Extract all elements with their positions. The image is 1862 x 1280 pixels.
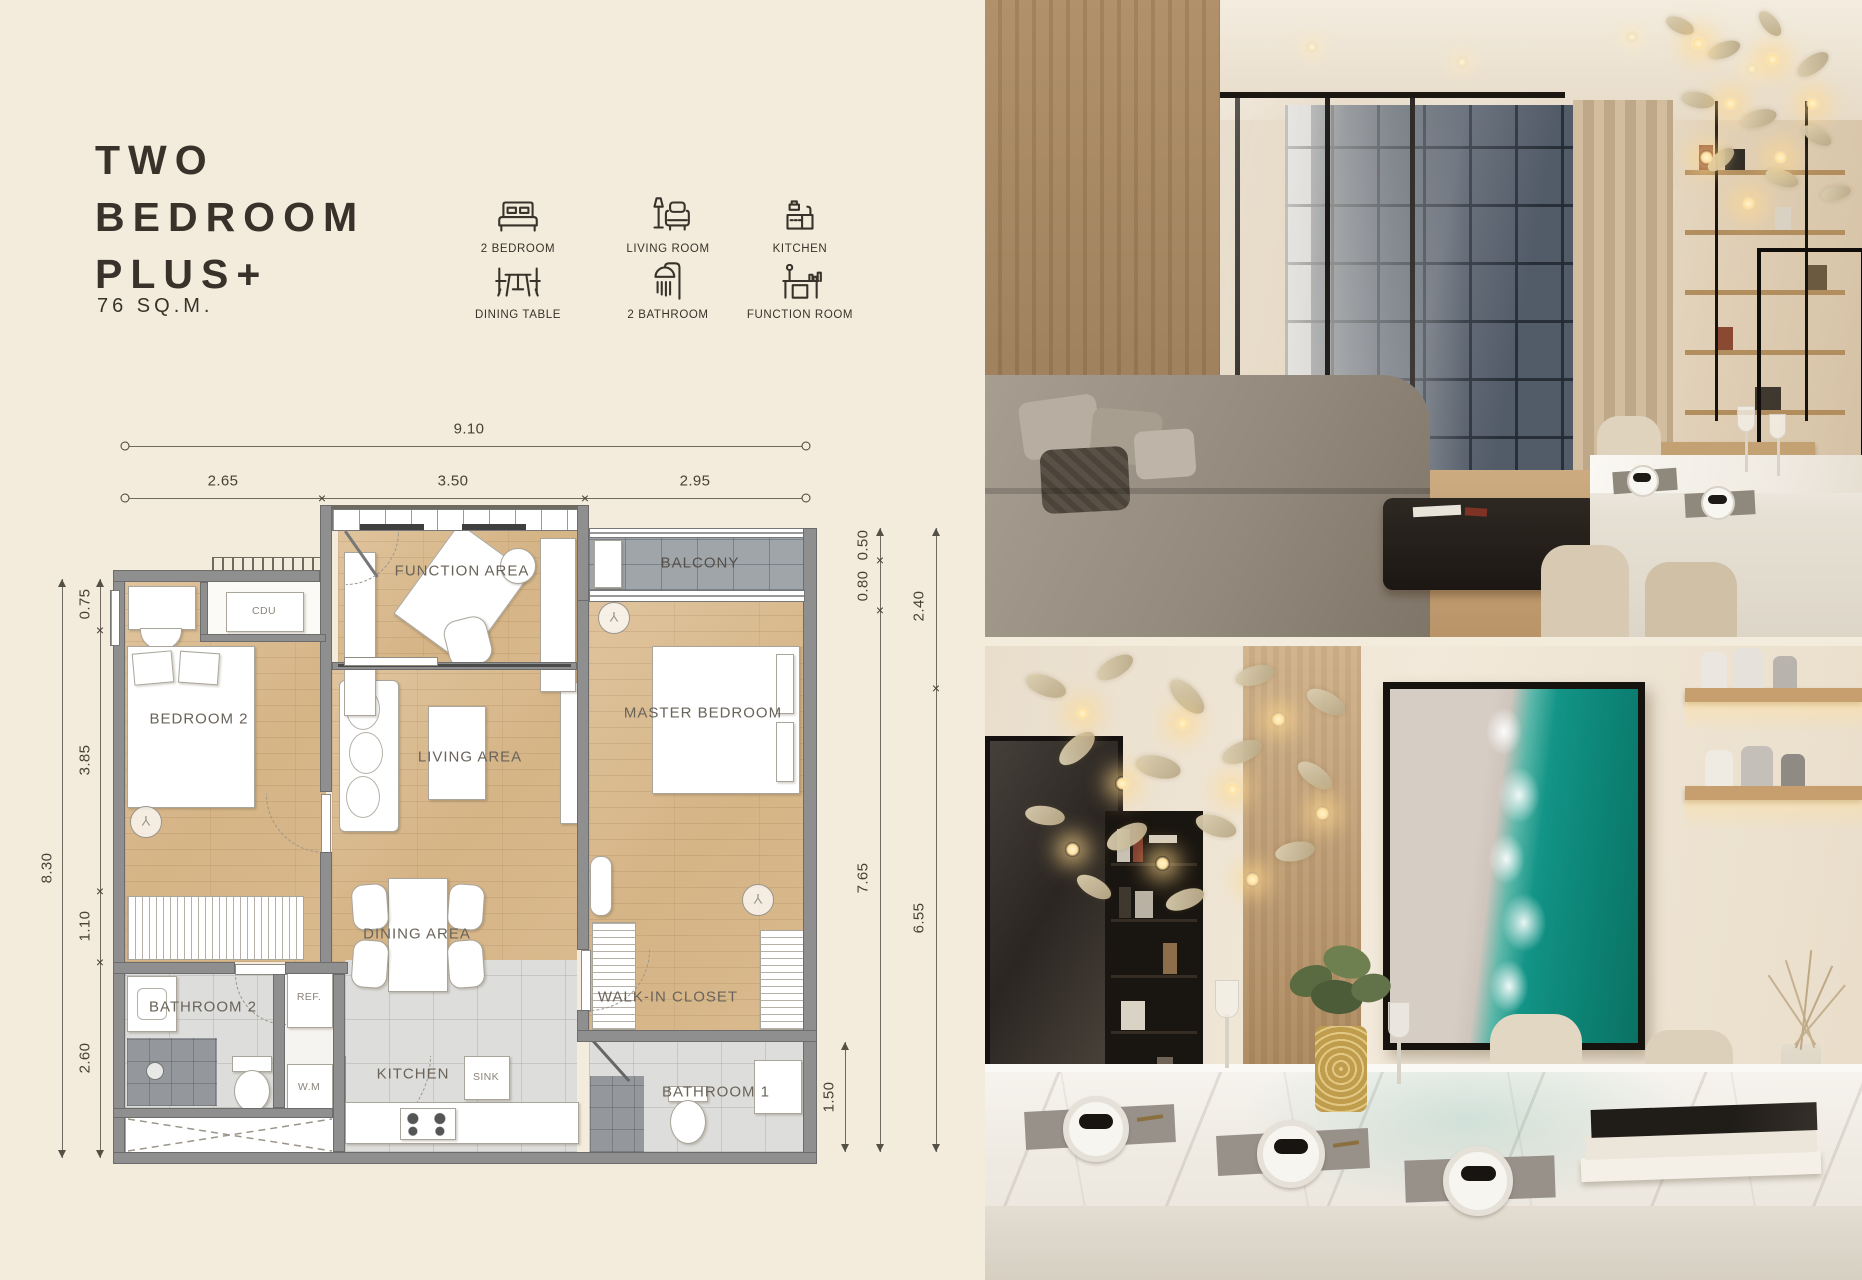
- napkin-roll: [1461, 1166, 1496, 1181]
- dining-chair: [446, 939, 485, 989]
- dim-r-outer-top: 2.40: [911, 591, 928, 622]
- dining-chair: [350, 939, 389, 989]
- toilet-bathroom1: [670, 1100, 706, 1144]
- pillow: [776, 722, 794, 782]
- counter-edge: [985, 1064, 1862, 1072]
- curtain-roll-master: [590, 856, 612, 916]
- legend-label: KITCHEN: [740, 243, 860, 256]
- sink-label: SINK: [473, 1071, 499, 1083]
- legend-item-dining: DINING TABLE: [458, 258, 578, 322]
- ocean-artwork: [1390, 689, 1638, 1043]
- wine-glass-stem: [1397, 1034, 1401, 1084]
- page-title-line2: BEDROOM: [95, 197, 365, 238]
- napkin-roll: [1079, 1114, 1113, 1129]
- kitchen-counter: [345, 1102, 579, 1144]
- wall: [113, 962, 235, 974]
- wall: [577, 600, 589, 950]
- balcony-rail: [589, 528, 805, 538]
- wine-glass: [1737, 406, 1755, 432]
- walk-in-closet-wardrobe-right: [760, 930, 804, 1030]
- sliding-door-leaf: [344, 657, 438, 666]
- canister: [1773, 656, 1797, 688]
- dim-bath1-width: 1.50: [821, 1082, 838, 1113]
- legend-label: 2 BEDROOM: [458, 243, 578, 256]
- wall: [113, 1152, 817, 1164]
- canister: [1741, 746, 1773, 786]
- closet-bedroom2: [127, 896, 304, 960]
- napkin-roll: [1708, 495, 1727, 504]
- brochure-page: TWO BEDROOM PLUS+ 76 SQ.M. 2 BEDROOM LIV…: [0, 0, 1862, 1280]
- dim-line-left-segments: [100, 579, 101, 1158]
- fridge-label: REF.: [297, 991, 321, 1003]
- shelf-underglow: [1685, 702, 1862, 732]
- dim-l3: 1.10: [77, 911, 94, 942]
- dim-w-right: 2.95: [680, 473, 711, 490]
- wine-glass-stem: [1777, 436, 1780, 476]
- canister: [1733, 648, 1763, 688]
- napkin-roll: [1274, 1139, 1308, 1154]
- balcony-sliding-glass: [589, 590, 805, 602]
- tv-console: [560, 682, 578, 824]
- room-label-living-area: LIVING AREA: [418, 749, 522, 766]
- ceiling-fan-symbol: [598, 602, 630, 634]
- pillow: [132, 650, 175, 685]
- dining-chair: [446, 883, 485, 931]
- legend-label: LIVING ROOM: [608, 243, 728, 256]
- canister: [1705, 750, 1733, 786]
- dining-chair-photo: [1645, 562, 1737, 637]
- room-label-bathroom1: BATHROOM 1: [662, 1084, 770, 1101]
- dim-line-bath1: [845, 1042, 846, 1152]
- wall: [577, 1030, 817, 1042]
- room-label-master-bedroom: MASTER BEDROOM: [624, 705, 782, 722]
- floating-shelf: [1685, 688, 1862, 702]
- bed-icon: [493, 192, 543, 238]
- dining-table-icon: [491, 258, 545, 304]
- dining-chair: [350, 883, 389, 931]
- sofa-cushion: [349, 732, 383, 774]
- dim-l4: 2.60: [77, 1043, 94, 1074]
- louver-vent: [212, 557, 320, 571]
- ocean-artwork-frame: [1383, 682, 1645, 1050]
- book-spine: [1163, 943, 1177, 974]
- window-lintel: [360, 524, 424, 530]
- x-brace: [126, 1117, 334, 1153]
- shelf-decor: [1121, 1001, 1145, 1030]
- wall: [320, 852, 332, 974]
- dim-l2: 3.85: [77, 745, 94, 776]
- ceiling-fan-symbol: [130, 806, 162, 838]
- sofa-cushion: [346, 776, 380, 818]
- dim-total-width: 9.10: [454, 421, 485, 438]
- shower-bathroom1: [590, 1076, 644, 1152]
- chandelier: [1645, 0, 1862, 235]
- wall: [113, 570, 125, 1164]
- wall: [285, 962, 348, 974]
- wall: [113, 1108, 333, 1118]
- room-label-bathroom2: BATHROOM 2: [149, 999, 257, 1016]
- cdu-label: CDU: [252, 605, 276, 617]
- toilet-bathroom2: [234, 1070, 270, 1112]
- ac-ledge: [125, 1116, 335, 1154]
- shower-icon: [643, 258, 693, 304]
- legend-item-bathroom: 2 BATHROOM: [608, 258, 728, 322]
- photo-dining-area: [985, 646, 1862, 1280]
- dining-chair-photo: [1541, 545, 1629, 637]
- page-title-line1: TWO: [95, 140, 215, 181]
- wall: [200, 634, 326, 642]
- legend-label: FUNCTION ROOM: [740, 309, 860, 322]
- unit-area: 76 SQ.M.: [97, 295, 213, 318]
- dim-line-right-outer: [936, 528, 937, 1152]
- chandelier: [985, 646, 1415, 946]
- canister: [1781, 754, 1805, 786]
- washer-label: W.M: [298, 1081, 320, 1093]
- dim-r1: 0.50: [855, 530, 872, 561]
- ceiling-fan-symbol: [742, 884, 774, 916]
- legend-item-bedroom: 2 BEDROOM: [458, 192, 578, 256]
- floating-shelf: [1685, 786, 1862, 800]
- dim-line-width-segments: [125, 498, 806, 499]
- photo-living-room: [985, 0, 1862, 637]
- sofa-pillow: [1133, 428, 1196, 480]
- wine-glass-stem: [1745, 428, 1748, 472]
- room-label-walk-in-closet: WALK-IN CLOSET: [598, 989, 738, 1006]
- wine-glass-stem: [1225, 1014, 1229, 1068]
- magazine: [1465, 507, 1488, 517]
- dim-r-inner-long: 7.65: [855, 863, 872, 894]
- legend-label: DINING TABLE: [458, 309, 578, 322]
- window-bedroom2: [110, 590, 120, 646]
- counter-front: [985, 1206, 1862, 1280]
- kitchen-sink-icon: [775, 192, 825, 238]
- dim-line-total-width: [125, 446, 806, 447]
- room-label-kitchen: KITCHEN: [377, 1066, 450, 1083]
- plate: [1257, 1120, 1325, 1188]
- shower-bathroom2: [127, 1038, 217, 1106]
- wall: [273, 974, 285, 1108]
- napkin-roll: [1633, 473, 1651, 482]
- dim-line-right-inner: [880, 528, 881, 1152]
- dim-r2: 0.80: [855, 571, 872, 602]
- sofa-lamp-icon: [643, 192, 693, 238]
- room-label-bedroom2: BEDROOM 2: [149, 711, 248, 728]
- wall: [320, 505, 332, 792]
- legend-item-kitchen: KITCHEN: [740, 192, 860, 256]
- gold-vase: [1315, 1026, 1367, 1112]
- wall: [113, 570, 320, 582]
- dim-left-total: 8.30: [39, 853, 56, 884]
- wall: [803, 528, 817, 1164]
- legend-item-function: FUNCTION ROOM: [740, 258, 860, 322]
- room-label-dining-area: DINING AREA: [363, 926, 471, 943]
- plate: [1443, 1146, 1513, 1216]
- stove: [400, 1108, 456, 1140]
- wine-glass: [1215, 980, 1239, 1018]
- wardrobe-bedroom2-top: [128, 586, 196, 630]
- wine-glass: [1388, 1002, 1410, 1038]
- function-desk-icon: [775, 258, 825, 304]
- wall: [200, 582, 208, 640]
- room-label-balcony: BALCONY: [661, 555, 740, 572]
- wall: [333, 974, 345, 1152]
- shelf-underglow: [1685, 800, 1862, 830]
- legend-label: 2 BATHROOM: [608, 309, 728, 322]
- plate: [1063, 1096, 1129, 1162]
- wine-glass: [1769, 414, 1786, 439]
- room-label-function-area: FUNCTION AREA: [395, 563, 530, 580]
- dim-r-outer-long: 6.55: [911, 903, 928, 934]
- dim-l1: 0.75: [77, 589, 94, 620]
- canister: [1701, 652, 1727, 688]
- window-lintel: [462, 524, 526, 530]
- sofa-seam: [985, 488, 1430, 494]
- legend-item-living: LIVING ROOM: [608, 192, 728, 256]
- dim-w-left: 2.65: [208, 473, 239, 490]
- dim-line-left-total: [62, 579, 63, 1158]
- shower-drain: [146, 1062, 164, 1080]
- pillow: [178, 651, 220, 686]
- dim-w-mid: 3.50: [438, 473, 469, 490]
- page-title-line3: PLUS+: [95, 254, 268, 295]
- balcony-ac-unit: [594, 540, 622, 588]
- knit-pillow: [1039, 446, 1130, 515]
